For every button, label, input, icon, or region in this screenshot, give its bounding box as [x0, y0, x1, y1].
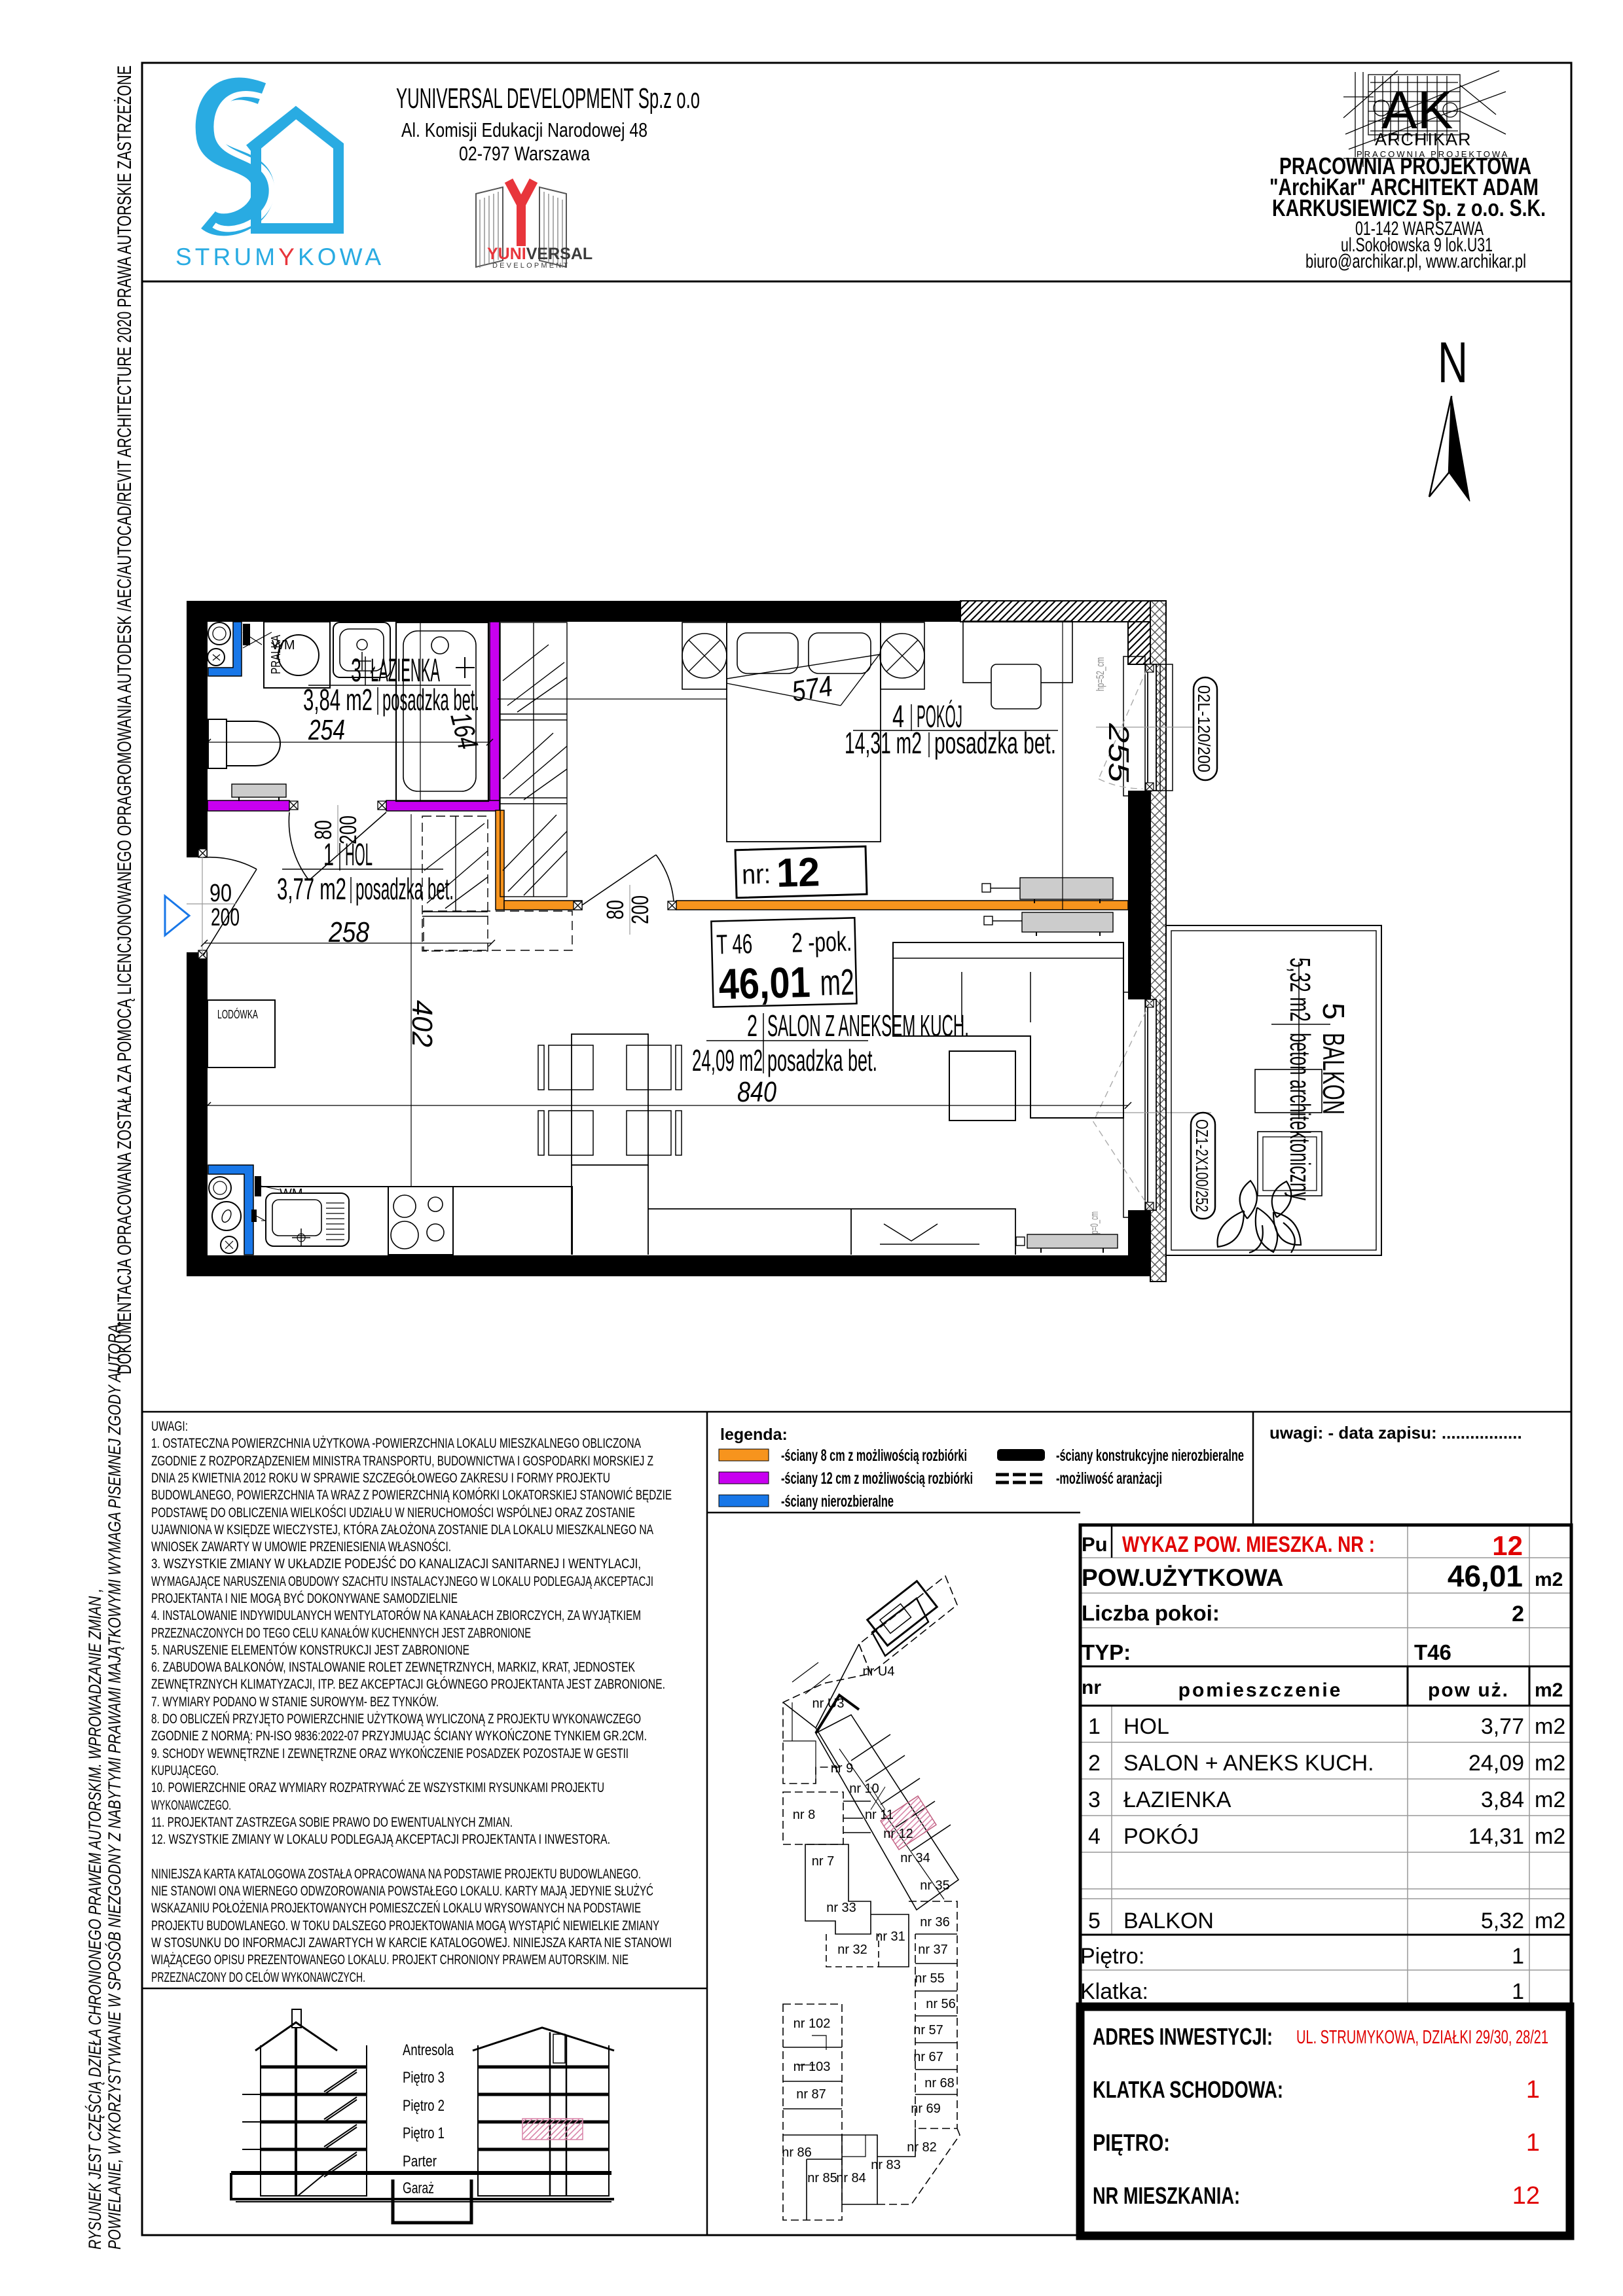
svg-text:nr 34: nr 34 — [900, 1851, 930, 1865]
svg-text:12: 12 — [776, 850, 820, 896]
svg-text:1: 1 — [1526, 2076, 1540, 2104]
svg-text:m2: m2 — [820, 961, 855, 1003]
svg-text:nr 83: nr 83 — [871, 2158, 901, 2172]
svg-text:biuro@archikar.pl, www.archika: biuro@archikar.pl, www.archikar.pl — [1305, 251, 1526, 272]
svg-text:5: 5 — [1317, 1003, 1351, 1020]
svg-text:4: 4 — [1088, 1824, 1101, 1849]
svg-text:WYMAGAJĄCE NARUSZENIA OBUDOWY: WYMAGAJĄCE NARUSZENIA OBUDOWY SZACHTU IN… — [151, 1573, 653, 1589]
svg-text:STRUMYKOWA: STRUMYKOWA — [175, 243, 381, 270]
svg-text:258: 258 — [328, 916, 369, 948]
svg-text:12: 12 — [1492, 1530, 1523, 1561]
svg-text:nr 68: nr 68 — [924, 2076, 955, 2090]
svg-text:24,09: 24,09 — [1468, 1751, 1524, 1776]
svg-text:YUNIVERSAL: YUNIVERSAL — [487, 245, 593, 263]
svg-text:WSKAZANIU POŁOŻENIA PROJEKTOWA: WSKAZANIU POŁOŻENIA PROJEKTOWANYCH POMIE… — [151, 1899, 641, 1916]
svg-text:nr 32: nr 32 — [837, 1943, 867, 1957]
svg-text:-ściany 12 cm z możliwością ro: -ściany 12 cm z możliwością rozbiórki — [781, 1469, 973, 1488]
svg-text:HOL: HOL — [1123, 1714, 1169, 1739]
svg-text:nr 82: nr 82 — [907, 2140, 937, 2155]
svg-text:POKÓJ: POKÓJ — [1123, 1824, 1199, 1849]
svg-text:4. INSTALOWANIE INDYWIDULANYCH: 4. INSTALOWANIE INDYWIDULANYCH WENTYLATO… — [151, 1607, 641, 1623]
svg-text:Pu: Pu — [1082, 1533, 1108, 1556]
svg-text:80: 80 — [602, 900, 629, 920]
svg-text:KUPUJĄCEGO.: KUPUJĄCEGO. — [151, 1763, 219, 1778]
svg-text:PIĘTRO:: PIĘTRO: — [1093, 2129, 1170, 2156]
svg-text:PROJEKTANTA I NIE MOGĄ BYĆ DOK: PROJEKTANTA I NIE MOGĄ BYĆ DOKONYWANE SA… — [151, 1590, 458, 1606]
svg-text:SALON Z ANEKSEM KUCH.: SALON Z ANEKSEM KUCH. — [767, 1009, 969, 1043]
svg-text:m2: m2 — [1535, 1909, 1565, 1933]
svg-text:hp=52_cm: hp=52_cm — [1094, 657, 1106, 691]
svg-text:46,01: 46,01 — [1448, 1559, 1523, 1593]
svg-text:DOKUMENTACJA OPRACOWANA ZOSTAŁ: DOKUMENTACJA OPRACOWANA ZOSTAŁA ZA POMOC… — [114, 65, 136, 1374]
svg-text:nr 103: nr 103 — [793, 2060, 831, 2074]
svg-text:T46: T46 — [1414, 1640, 1451, 1664]
svg-text:02L-120/200: 02L-120/200 — [1194, 685, 1214, 772]
svg-text:WIĄŻĄCEGO OPISU PREZENTOWANEGO: WIĄŻĄCEGO OPISU PREZENTOWANEGO LOKALU. P… — [151, 1952, 629, 1967]
svg-text:KARKUSIEWICZ Sp. z o.o. S.K.: KARKUSIEWICZ Sp. z o.o. S.K. — [1272, 194, 1546, 221]
svg-text:14,31: 14,31 — [1468, 1824, 1524, 1849]
svg-text:Antresola: Antresola — [403, 2041, 454, 2059]
svg-text:6. ZABUDOWA BALKONÓW, INSTALOW: 6. ZABUDOWA BALKONÓW, INSTALOWANIE ROLET… — [151, 1659, 635, 1675]
svg-text:3,77 m2: 3,77 m2 — [277, 872, 346, 906]
svg-text:nr 55: nr 55 — [915, 1971, 945, 1986]
svg-text:2 -pok.: 2 -pok. — [792, 925, 852, 958]
svg-text:3,84: 3,84 — [1481, 1787, 1524, 1812]
svg-text:nr 69: nr 69 — [911, 2102, 941, 2116]
svg-text:Piętro 2: Piętro 2 — [403, 2097, 445, 2115]
svg-text:m2: m2 — [1535, 1679, 1563, 1701]
svg-text:10. POWIERZCHNIE ORAZ WYMIARY: 10. POWIERZCHNIE ORAZ WYMIARY ROZPATRYWA… — [151, 1779, 604, 1795]
svg-text:200: 200 — [627, 895, 653, 924]
svg-text:Klatka:: Klatka: — [1080, 1979, 1148, 2004]
svg-text:WM: WM — [272, 638, 295, 653]
svg-text:DNIA 25 KWIETNIA 2012 ROKU W S: DNIA 25 KWIETNIA 2012 ROKU W SPRAWIE SZC… — [151, 1469, 610, 1486]
svg-text:5. NARUSZENIE ELEMENTÓW KONST: 5. NARUSZENIE ELEMENTÓW KONSTRUKCJI JEST… — [151, 1641, 469, 1658]
svg-text:beton architektoniczny: beton architektoniczny — [1284, 1033, 1316, 1200]
svg-text:Piętro:: Piętro: — [1080, 1944, 1144, 1969]
svg-text:TYP:: TYP: — [1082, 1640, 1131, 1664]
svg-text:nr U3: nr U3 — [812, 1696, 845, 1711]
svg-text:nr 12: nr 12 — [883, 1827, 913, 1841]
svg-text:-ściany 8 cm z możliwością roz: -ściany 8 cm z możliwością rozbiórki — [781, 1446, 967, 1465]
svg-text:840: 840 — [737, 1076, 776, 1108]
svg-text:nr 11: nr 11 — [865, 1808, 894, 1822]
svg-text:ZGODNIE Z ROZPORZĄDZENIEM MINI: ZGODNIE Z ROZPORZĄDZENIEM MINISTRA TRANS… — [151, 1453, 653, 1469]
svg-text:RYSUNEK JEST CZĘŚCIĄ DZIEŁA: RYSUNEK JEST CZĘŚCIĄ DZIEŁA CHRONIONEGO … — [84, 1588, 105, 2250]
svg-text:12. WSZYSTKIE ZMIANY W LOKALU: 12. WSZYSTKIE ZMIANY W LOKALU PODLEGAJĄ … — [151, 1831, 610, 1847]
svg-text:nr 33: nr 33 — [826, 1901, 856, 1915]
svg-text:nr 35: nr 35 — [920, 1878, 950, 1893]
svg-text:8. DO OBLICZEŃ PRZYJĘTO POWIE: 8. DO OBLICZEŃ PRZYJĘTO POWIERZCHNIE UŻY… — [151, 1710, 641, 1727]
svg-text:5,32: 5,32 — [1481, 1909, 1524, 1933]
svg-text:3,77: 3,77 — [1481, 1714, 1524, 1739]
svg-text:1: 1 — [323, 838, 334, 872]
svg-text:nr 87: nr 87 — [796, 2087, 826, 2102]
svg-text:nr: nr — [1082, 1677, 1101, 1698]
svg-text:uwagi: - data zapisu: ......: uwagi: - data zapisu: ................. — [1269, 1423, 1522, 1443]
svg-text:nr 84: nr 84 — [836, 2171, 866, 2185]
svg-text:1: 1 — [1512, 1979, 1524, 2004]
svg-text:Piętro 3: Piętro 3 — [403, 2069, 445, 2087]
svg-text:WNIOSEK ZAWARTY W UMOWIE PRZEN: WNIOSEK ZAWARTY W UMOWIE PRZENIESIENIA W… — [151, 1538, 451, 1554]
svg-text:Garaż: Garaż — [403, 2179, 434, 2197]
svg-text:3,84 m2: 3,84 m2 — [303, 683, 373, 717]
svg-text:2: 2 — [1088, 1751, 1101, 1776]
svg-text:12: 12 — [1512, 2182, 1540, 2210]
svg-text:Piętro 1: Piętro 1 — [403, 2125, 445, 2142]
svg-text:nr U4: nr U4 — [863, 1664, 895, 1679]
svg-text:DEVELOPMENT: DEVELOPMENT — [492, 262, 570, 270]
svg-text:legenda:: legenda: — [720, 1426, 788, 1444]
svg-text:NR MIESZKANIA:: NR MIESZKANIA: — [1093, 2182, 1240, 2209]
svg-text:POWIELANIE, WYKORZYSTYWANIE: POWIELANIE, WYKORZYSTYWANIE W SPOSÓB NIE… — [104, 1320, 124, 2250]
svg-text:BALKON: BALKON — [1317, 1033, 1351, 1115]
svg-text:402: 402 — [406, 1000, 438, 1047]
svg-text:T 46: T 46 — [716, 928, 753, 960]
svg-text:574: 574 — [790, 670, 835, 708]
svg-text:WYKONAWCZEGO.: WYKONAWCZEGO. — [151, 1797, 231, 1813]
svg-text:3: 3 — [1088, 1787, 1101, 1812]
svg-text:5: 5 — [1088, 1909, 1101, 1933]
svg-text:80: 80 — [310, 820, 337, 840]
svg-text:m2: m2 — [1535, 1751, 1565, 1776]
svg-text:UJAWNIONA W KSIĘDZE WIECZYSTEJ: UJAWNIONA W KSIĘDZE WIECZYSTEJ, KTÓRA ZA… — [151, 1521, 653, 1537]
svg-text:11. PROJEKTANT ZASTRZEGA SOBIE: 11. PROJEKTANT ZASTRZEGA SOBIE PRAWO DO … — [151, 1814, 513, 1830]
svg-text:24,09 m2: 24,09 m2 — [692, 1043, 763, 1077]
svg-text:LODÓWKA: LODÓWKA — [217, 1007, 258, 1021]
svg-text:POW.UŻYTKOWA: POW.UŻYTKOWA — [1082, 1564, 1283, 1591]
svg-text:pomieszczenie: pomieszczenie — [1178, 1679, 1343, 1701]
svg-text:nr 7: nr 7 — [812, 1854, 834, 1869]
svg-text:m2: m2 — [1535, 1714, 1565, 1739]
svg-text:5,32 m2: 5,32 m2 — [1284, 958, 1316, 1022]
svg-text:Al. Komisji Edukacji Narodowej: Al. Komisji Edukacji Narodowej 48 — [401, 118, 647, 141]
svg-text:nr 86: nr 86 — [782, 2145, 812, 2160]
svg-text:2: 2 — [747, 1009, 757, 1043]
svg-text:nr 31: nr 31 — [875, 1929, 905, 1944]
svg-text:ZGODNIE Z NORMĄ: PN-ISO 9836:2: ZGODNIE Z NORMĄ: PN-ISO 9836:2022-07 PRZ… — [151, 1727, 647, 1744]
svg-text:m2: m2 — [1535, 1824, 1565, 1849]
svg-text:nr 9: nr 9 — [831, 1761, 853, 1776]
svg-text:BALKON: BALKON — [1123, 1909, 1214, 1933]
svg-text:NINIEJSZA KARTA KATALOGOWA ZOS: NINIEJSZA KARTA KATALOGOWA ZOSTAŁA OPRAC… — [151, 1866, 641, 1882]
svg-text:N: N — [1438, 330, 1468, 395]
svg-text:46,01: 46,01 — [718, 958, 811, 1008]
svg-text:9. SCHODY WEWNĘTRZNE I ZEWNĘTR: 9. SCHODY WEWNĘTRZNE I ZEWNĘTRZNE ORAZ W… — [151, 1745, 629, 1761]
svg-text:255: 255 — [1103, 723, 1135, 783]
svg-text:nr:: nr: — [741, 858, 771, 889]
svg-text:SALON + ANEKS KUCH.: SALON + ANEKS KUCH. — [1123, 1751, 1374, 1776]
svg-text:YUNIVERSAL DEVELOPMENT Sp.z o.: YUNIVERSAL DEVELOPMENT Sp.z o.o — [396, 82, 700, 115]
svg-text:UL. STRUMYKOWA, DZIAŁKI 29/30,: UL. STRUMYKOWA, DZIAŁKI 29/30, 28/21 — [1296, 2027, 1548, 2048]
svg-text:m2: m2 — [1535, 1569, 1563, 1590]
svg-text:posadzka bet.: posadzka bet. — [934, 726, 1056, 760]
svg-text:nr 36: nr 36 — [920, 1915, 950, 1929]
svg-text:nr 57: nr 57 — [913, 2023, 943, 2037]
svg-text:Parter: Parter — [403, 2153, 437, 2170]
svg-text:PRZEZNACZONYCH DO TEGO CELU KA: PRZEZNACZONYCH DO TEGO CELU KANAŁÓW KUCH… — [151, 1624, 531, 1641]
svg-text:1: 1 — [1512, 1944, 1524, 1969]
svg-text:1: 1 — [1526, 2129, 1540, 2157]
svg-text:m2: m2 — [1535, 1787, 1565, 1812]
svg-text:200: 200 — [211, 904, 240, 931]
svg-text:nr 37: nr 37 — [918, 1943, 948, 1957]
svg-text:1: 1 — [1088, 1714, 1101, 1739]
svg-text:200: 200 — [335, 816, 361, 844]
svg-text:nr 67: nr 67 — [913, 2050, 943, 2064]
svg-text:ADRES INWESTYCJI:: ADRES INWESTYCJI: — [1093, 2023, 1273, 2050]
svg-text:W STOSUNKU DO INFORMACJI ZAWA: W STOSUNKU DO INFORMACJI ZAWARTYCH W KAR… — [151, 1935, 672, 1950]
svg-text:nr 56: nr 56 — [926, 1997, 956, 2011]
svg-text:hp=0_cm: hp=0_cm — [1088, 1211, 1101, 1238]
svg-text:nr 85: nr 85 — [807, 2171, 837, 2185]
svg-text:nr 10: nr 10 — [849, 1782, 879, 1796]
svg-text:BUDOWLANEGO, POWIERZCHNIA TA W: BUDOWLANEGO, POWIERZCHNIA TA WRAZ Z POWI… — [151, 1486, 672, 1503]
svg-text:1. OSTATECZNA POWIERZCHNIA UŻ: 1. OSTATECZNA POWIERZCHNIA UŻYTKOWA -POW… — [151, 1435, 641, 1451]
svg-text:2: 2 — [1512, 1602, 1524, 1626]
svg-text:90: 90 — [210, 880, 232, 907]
svg-text:UWAGI:: UWAGI: — [151, 1418, 188, 1434]
svg-text:pow uż.: pow uż. — [1428, 1679, 1509, 1701]
svg-text:posadzka bet.: posadzka bet. — [767, 1043, 877, 1077]
svg-text:-możliwość aranżacji: -możliwość aranżacji — [1056, 1469, 1162, 1488]
svg-text:254: 254 — [308, 714, 345, 746]
svg-text:WYKAZ POW. MIESZKA. NR :: WYKAZ POW. MIESZKA. NR : — [1122, 1532, 1375, 1557]
svg-text:PODSTAWĘ DO OBLICZENIA WIELKOŚ: PODSTAWĘ DO OBLICZENIA WIELKOŚCI UDZIAŁU… — [151, 1504, 635, 1520]
svg-text:-ściany konstrukcyjne nierozbi: -ściany konstrukcyjne nierozbieralne — [1056, 1446, 1244, 1465]
svg-text:KLATKA SCHODOWA:: KLATKA SCHODOWA: — [1093, 2076, 1283, 2103]
svg-text:PROJEKTU BUDOWLANEGO. W TOKU D: PROJEKTU BUDOWLANEGO. W TOKU DALSZEGO PR… — [151, 1917, 659, 1933]
svg-text:OZ1-2X100/252: OZ1-2X100/252 — [1192, 1119, 1212, 1212]
svg-text:Liczba pokoi:: Liczba pokoi: — [1082, 1601, 1220, 1625]
svg-text:posadzka bet.: posadzka bet. — [356, 872, 454, 906]
svg-text:NIE STANOWI ONA WIERNEGO ODWZO: NIE STANOWI ONA WIERNEGO ODWZOROWANIA PO… — [151, 1882, 653, 1899]
svg-text:PRZEZNACZONY DO CELÓW WYKONAWC: PRZEZNACZONY DO CELÓW WYKONAWCZYCH. — [151, 1969, 365, 1985]
svg-text:ZEWNĘTRZNYCH KLIMATYZACJI, ITP: ZEWNĘTRZNYCH KLIMATYZACJI, ITP. BEZ AKCE… — [151, 1676, 665, 1692]
svg-text:ŁAZIENKA: ŁAZIENKA — [1123, 1787, 1231, 1812]
svg-text:02-797 Warszawa: 02-797 Warszawa — [459, 142, 591, 165]
svg-text:14,31 m2: 14,31 m2 — [845, 726, 922, 760]
svg-text:ARCHIKAR: ARCHIKAR — [1375, 130, 1472, 149]
svg-text:nr 102: nr 102 — [793, 2017, 831, 2031]
svg-text:nr 8: nr 8 — [793, 1808, 815, 1822]
svg-text:-ściany nierozbieralne: -ściany nierozbieralne — [781, 1492, 894, 1511]
svg-text:7. WYMIARY PODANO W STANIE SUR: 7. WYMIARY PODANO W STANIE SUROWYM- BEZ … — [151, 1693, 439, 1710]
svg-text:3. WSZYSTKIE ZMIANY W UKŁADZ: 3. WSZYSTKIE ZMIANY W UKŁADZIE PODEJŚĆ D… — [151, 1555, 641, 1571]
